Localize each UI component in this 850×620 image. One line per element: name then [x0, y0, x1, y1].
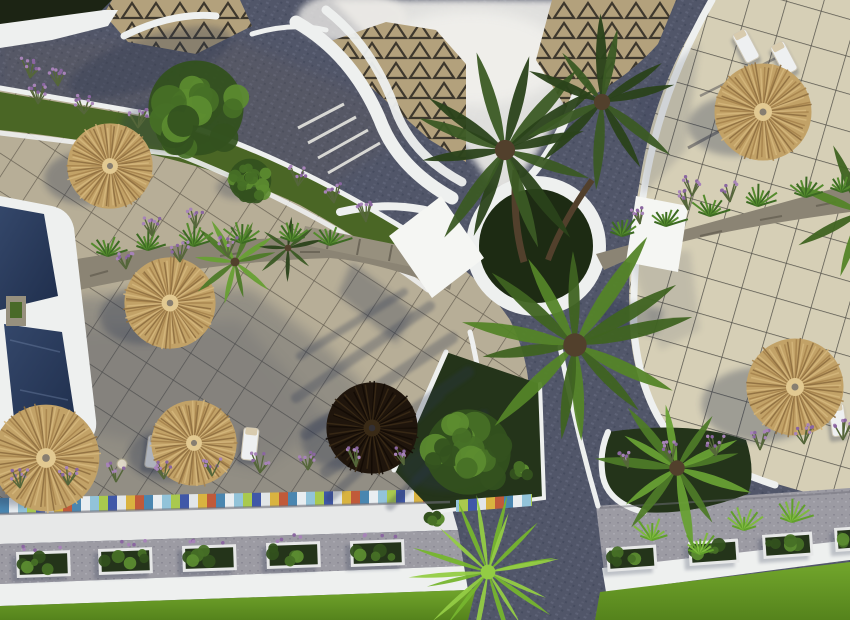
- side-table: [117, 459, 127, 469]
- planter-box: [601, 544, 658, 577]
- planter-box: [757, 532, 814, 564]
- aerial-resort-rendering: [0, 0, 850, 620]
- pool-pedestal-plant: [10, 302, 22, 318]
- sun-lounger: [237, 427, 259, 466]
